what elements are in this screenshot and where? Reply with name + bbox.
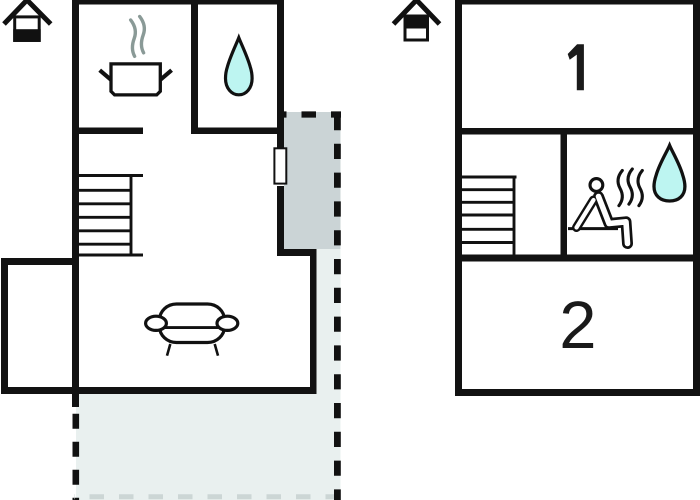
svg-text:2: 2 [559, 288, 596, 363]
